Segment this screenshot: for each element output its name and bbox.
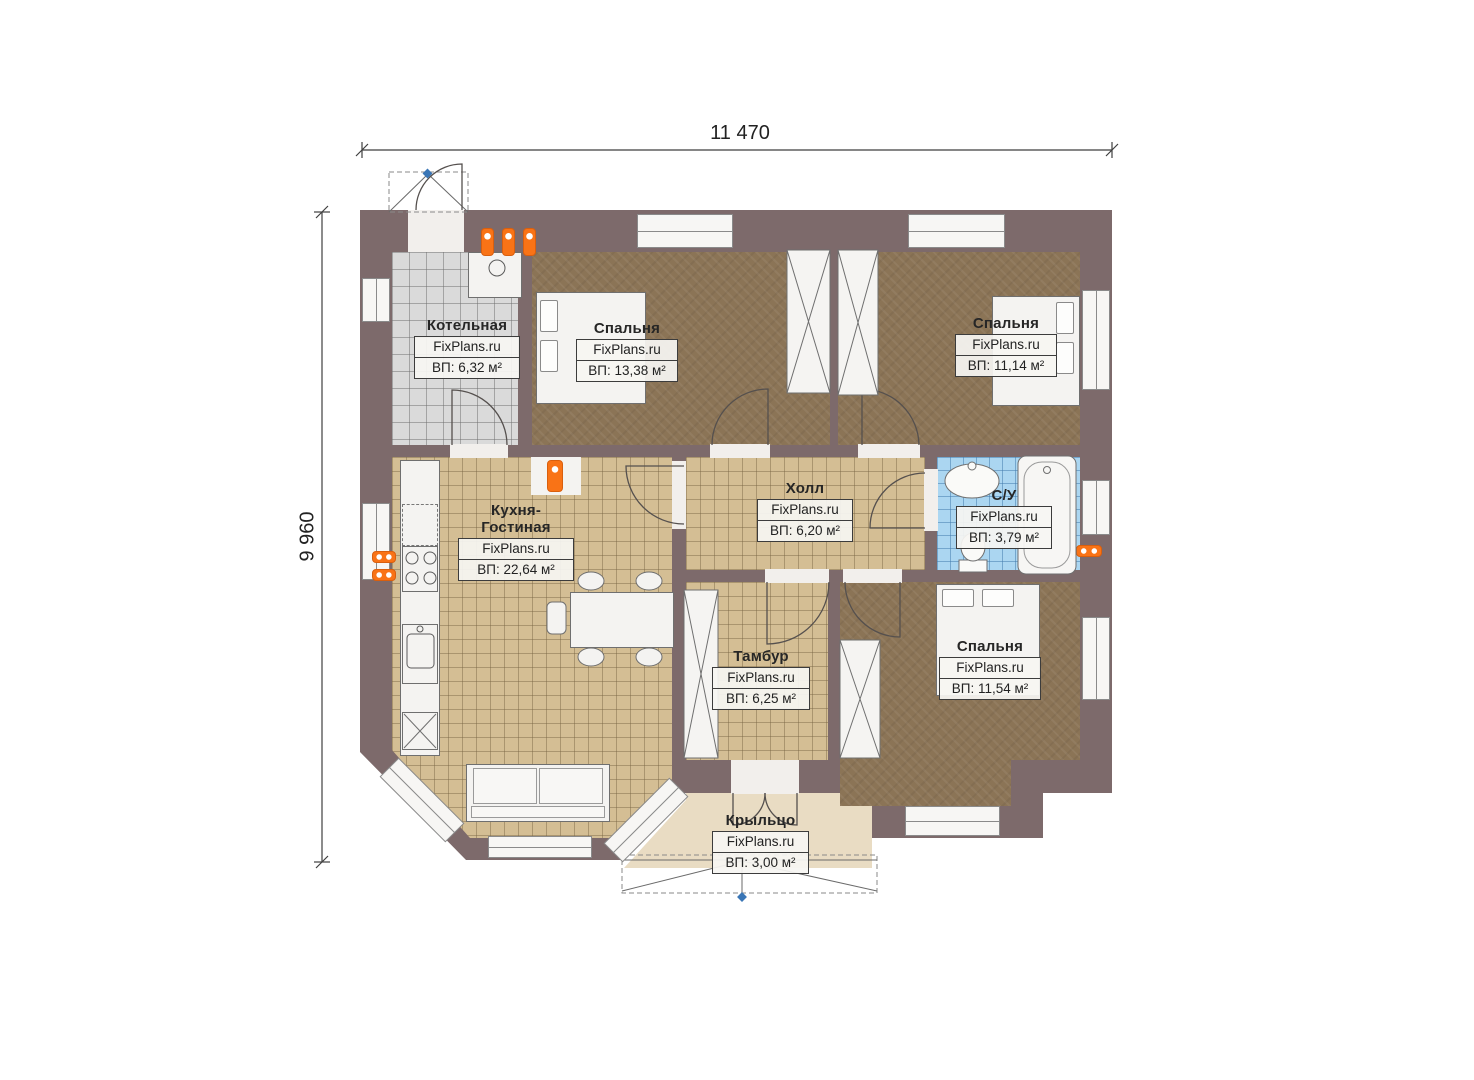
- window: [488, 836, 592, 858]
- room-area: ВП: 6,25 м²: [712, 688, 810, 710]
- door-opening-vestibule: [765, 569, 829, 583]
- radiator: [547, 460, 563, 492]
- room-label-vestibule: Тамбур FixPlans.ru ВП: 6,25 м²: [712, 648, 810, 710]
- door-opening-entrance-boiler: [408, 210, 464, 252]
- radiator: [481, 228, 494, 256]
- room-area: ВП: 11,14 м²: [955, 355, 1057, 377]
- room-area: ВП: 22,64 м²: [458, 559, 574, 581]
- sofa-cushion: [539, 768, 603, 804]
- door-opening-bedroom-2: [858, 444, 920, 458]
- radiator: [502, 228, 515, 256]
- room-name: С/У: [956, 487, 1052, 504]
- door-opening-main-entrance: [731, 760, 799, 794]
- pillow: [982, 589, 1014, 607]
- porch-marker: [737, 892, 747, 902]
- room-label-kitchen: Кухня-Гостиная FixPlans.ru ВП: 22,64 м²: [458, 502, 574, 581]
- dining-table: [570, 592, 674, 648]
- radiator: [372, 551, 396, 563]
- room-area: ВП: 3,79 м²: [956, 527, 1052, 549]
- watermark: FixPlans.ru: [414, 336, 520, 358]
- room-name: Холл: [757, 480, 853, 497]
- room-label-porch: Крыльцо FixPlans.ru ВП: 3,00 м²: [712, 812, 809, 874]
- room-name: Спальня: [939, 638, 1041, 655]
- dimension-height-label: 9 960: [297, 497, 320, 577]
- watermark: FixPlans.ru: [956, 506, 1052, 528]
- watermark: FixPlans.ru: [757, 499, 853, 521]
- window: [637, 214, 733, 248]
- room-area: ВП: 6,20 м²: [757, 520, 853, 542]
- door-opening-boiler-kitchen: [450, 444, 508, 458]
- watermark: FixPlans.ru: [939, 657, 1041, 679]
- window: [1082, 617, 1110, 700]
- window: [1082, 480, 1110, 535]
- corner-cabinet: [402, 712, 438, 750]
- window: [362, 278, 390, 322]
- sofa-cushion: [473, 768, 537, 804]
- watermark: FixPlans.ru: [458, 538, 574, 560]
- window: [1082, 290, 1110, 390]
- door-opening-bedroom-3: [843, 569, 902, 583]
- watermark: FixPlans.ru: [712, 831, 809, 853]
- room-name: Спальня: [576, 320, 678, 337]
- watermark: FixPlans.ru: [712, 667, 810, 689]
- dimension-width-label: 11 470: [700, 122, 780, 145]
- canopy-marker: [423, 169, 433, 179]
- room-name: Крыльцо: [712, 812, 809, 829]
- kitchen-sink-cabinet: [402, 624, 438, 684]
- pillow: [942, 589, 974, 607]
- door-opening-kitchen-hall: [672, 461, 686, 529]
- watermark: FixPlans.ru: [955, 334, 1057, 356]
- pillow: [540, 340, 558, 372]
- fridge: [402, 504, 438, 546]
- room-label-bathroom: С/У FixPlans.ru ВП: 3,79 м²: [956, 487, 1052, 549]
- radiator: [372, 569, 396, 581]
- room-name: Кухня-Гостиная: [458, 502, 574, 536]
- room-name: Спальня: [955, 315, 1057, 332]
- window: [905, 806, 1000, 836]
- room-area: ВП: 6,32 м²: [414, 357, 520, 379]
- room-label-bedroom-2: Спальня FixPlans.ru ВП: 11,14 м²: [955, 315, 1057, 377]
- room-name: Тамбур: [712, 648, 810, 665]
- window: [908, 214, 1005, 248]
- floor-plan-canvas: Котельная FixPlans.ru ВП: 6,32 м² Спальн…: [0, 0, 1474, 1080]
- door-opening-bedroom-1: [710, 444, 770, 458]
- room-name: Котельная: [414, 317, 520, 334]
- canopy-outline: [389, 164, 468, 212]
- stove: [402, 546, 438, 592]
- radiator: [523, 228, 536, 256]
- radiator: [1076, 545, 1102, 557]
- room-label-boiler: Котельная FixPlans.ru ВП: 6,32 м²: [414, 317, 520, 379]
- sofa-back: [471, 806, 605, 818]
- room-area: ВП: 11,54 м²: [939, 678, 1041, 700]
- room-label-bedroom-3: Спальня FixPlans.ru ВП: 11,54 м²: [939, 638, 1041, 700]
- room-area: ВП: 3,00 м²: [712, 852, 809, 874]
- watermark: FixPlans.ru: [576, 339, 678, 361]
- pillow: [1056, 302, 1074, 334]
- pillow: [1056, 342, 1074, 374]
- room-label-hall: Холл FixPlans.ru ВП: 6,20 м²: [757, 480, 853, 542]
- room-label-bedroom-1: Спальня FixPlans.ru ВП: 13,38 м²: [576, 320, 678, 382]
- boiler-unit: [468, 252, 522, 298]
- pillow: [540, 300, 558, 332]
- room-area: ВП: 13,38 м²: [576, 360, 678, 382]
- door-opening-bathroom: [924, 469, 938, 531]
